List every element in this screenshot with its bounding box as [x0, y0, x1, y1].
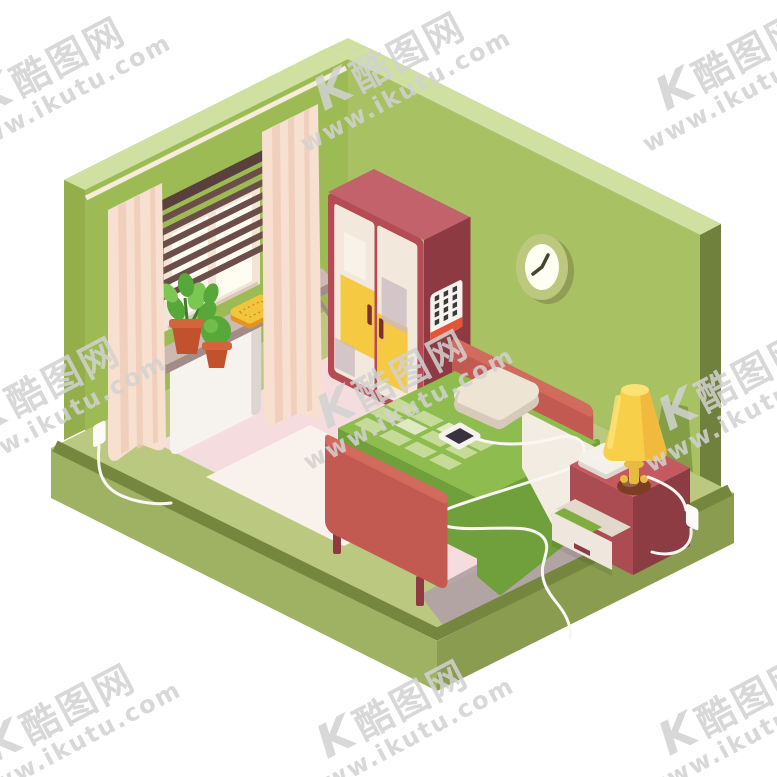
curtain-left: [108, 183, 166, 461]
bush-pot-rim: [202, 342, 232, 350]
lamp-foot: [620, 475, 628, 483]
door-handle-right[interactable]: [379, 317, 383, 339]
curtain-right: [262, 104, 322, 427]
plant-pot-rim: [169, 319, 205, 328]
lamp-shade-opening: [621, 384, 649, 396]
bush-pot: [205, 348, 228, 368]
bedroom-illustration: [0, 0, 777, 777]
door-handle-left[interactable]: [367, 304, 371, 326]
bed-leg: [416, 576, 424, 606]
bush-highlight: [204, 319, 218, 333]
bush-foliage: [201, 316, 231, 346]
stock-illustration-page: K酷图网www.ikutu.com K酷图网www.ikutu.com K酷图网…: [0, 0, 777, 777]
pillow: [456, 376, 530, 420]
pillow-top: [463, 376, 530, 411]
plant-pot: [172, 326, 202, 354]
